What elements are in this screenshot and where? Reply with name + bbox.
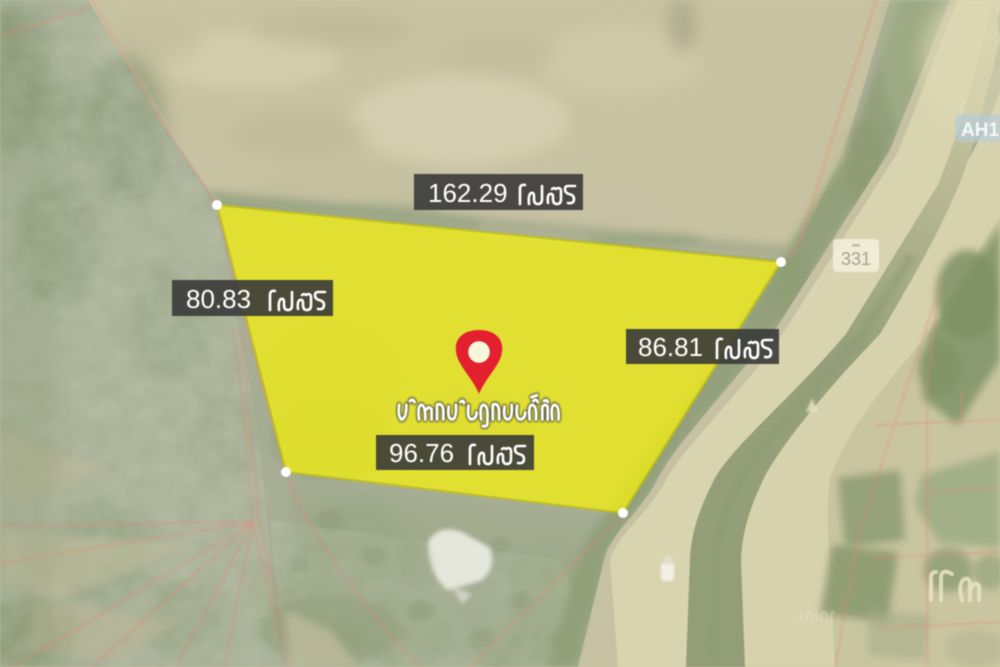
- svg-text:96.76: 96.76: [389, 438, 454, 468]
- svg-text:162.29: 162.29: [428, 178, 508, 208]
- svg-text:86.81: 86.81: [638, 332, 703, 362]
- svg-text:331: 331: [841, 249, 871, 269]
- svg-text:80.83: 80.83: [186, 284, 251, 314]
- svg-text:AH1: AH1: [961, 120, 999, 141]
